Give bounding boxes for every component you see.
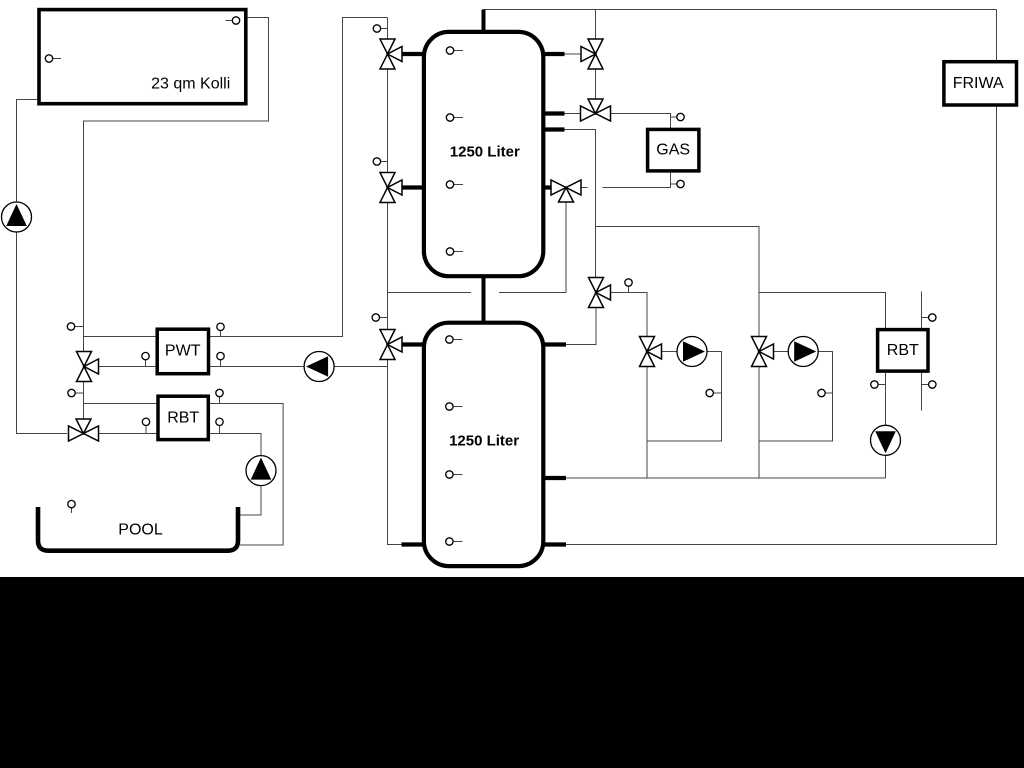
svg-text:1250 Liter: 1250 Liter (450, 144, 520, 161)
svg-text:RBT: RBT (167, 409, 199, 426)
svg-text:23 qm Kolli: 23 qm Kolli (151, 76, 230, 93)
svg-text:RBT: RBT (887, 342, 919, 359)
svg-text:1250 Liter: 1250 Liter (449, 433, 519, 450)
svg-text:PWT: PWT (165, 343, 201, 360)
svg-text:GAS: GAS (656, 142, 690, 159)
svg-text:FRIWA: FRIWA (953, 75, 1004, 92)
svg-text:POOL: POOL (118, 522, 163, 539)
